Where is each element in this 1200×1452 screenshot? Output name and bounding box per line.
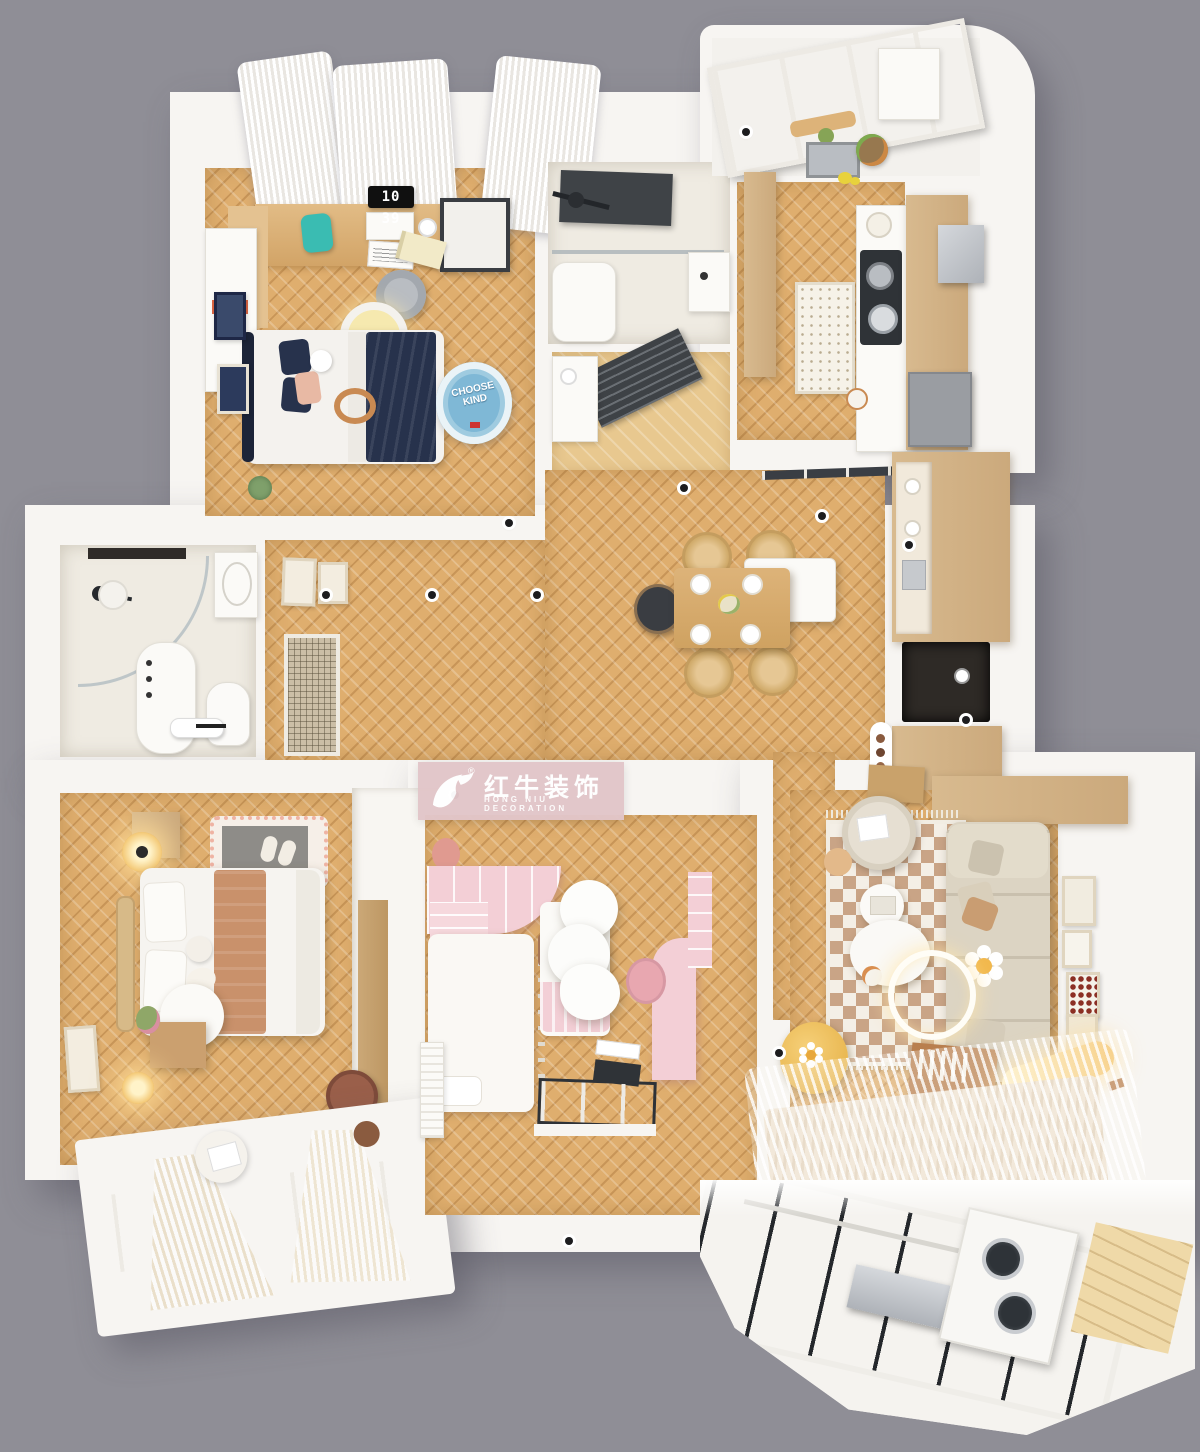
bed1-navy-duvet <box>366 332 436 462</box>
kitchen-snack-plate <box>846 388 868 410</box>
shelf-dish-1 <box>904 478 921 495</box>
sink-basin <box>222 562 252 606</box>
kids-window-sill <box>534 1124 656 1136</box>
spotlight <box>818 512 826 520</box>
bedroom1-art-1 <box>214 292 246 340</box>
flip-clock-time: 10 39 <box>382 189 401 227</box>
rug-red-tag <box>470 422 480 428</box>
pouf-daisy-center <box>806 1050 816 1060</box>
pen-cup <box>418 218 437 237</box>
table-flowers <box>718 594 740 614</box>
living-art-2 <box>1062 930 1092 968</box>
laundry-balcony <box>700 1180 1195 1435</box>
plate-4 <box>740 624 761 645</box>
kettle <box>866 212 892 238</box>
tub-control-1 <box>146 660 152 666</box>
master-pillow-1 <box>142 881 187 943</box>
kids-desk-chair <box>626 958 666 1004</box>
coffee-niche <box>902 642 990 722</box>
spotlight <box>565 1237 573 1245</box>
bed1-pretzel <box>334 388 376 424</box>
fridge <box>908 372 972 447</box>
bed1-pillow-a <box>278 338 312 375</box>
kids-heater <box>420 1042 444 1138</box>
daisy-cushion-center <box>976 958 992 974</box>
living-art-3 <box>1066 972 1100 1018</box>
coffee-table-book <box>870 896 896 915</box>
master-art <box>64 1025 101 1093</box>
lamp-center-dot <box>136 846 148 858</box>
spotlight <box>742 128 750 136</box>
spotlight <box>533 591 541 599</box>
shelf-dish-2 <box>904 520 921 537</box>
floorplan-render: 10 39 CHOOSE KIND <box>0 0 1200 1452</box>
spotlight <box>775 1049 783 1057</box>
bed1-pillow-peach <box>294 370 322 405</box>
laundry-curtain-wisp <box>700 1180 1195 1216</box>
choose-kind-rug: CHOOSE KIND <box>436 362 512 444</box>
kids-window <box>537 1078 657 1128</box>
pot-1 <box>866 262 894 290</box>
pot-2 <box>868 304 898 334</box>
plate-1 <box>690 574 711 595</box>
spotlight <box>905 541 913 549</box>
shower-room-sink <box>688 252 730 312</box>
cloud-table-flower <box>560 964 620 1020</box>
master-floor-lamp <box>122 1072 154 1104</box>
ring-floor-lamp <box>888 950 976 1040</box>
watermark-subtitle: HONG NIU DECORATION <box>484 795 624 813</box>
shower-head <box>568 192 584 208</box>
spotlight <box>505 519 513 527</box>
rug-text: CHOOSE KIND <box>444 378 503 411</box>
spotlight <box>428 591 436 599</box>
master-plush-ball <box>186 936 212 962</box>
bedroom1-art-2 <box>217 364 249 414</box>
shoes <box>876 734 885 743</box>
kitchen-runner-rug <box>795 282 855 394</box>
tv-cabinet <box>932 776 1128 824</box>
towel-bar <box>196 724 226 728</box>
corridor-art-1 <box>281 557 317 606</box>
master-foot-cabinet <box>150 1022 206 1068</box>
lemons <box>838 172 852 184</box>
balcony-appliance <box>878 48 940 120</box>
dining-chair-4 <box>748 646 798 696</box>
spotlight <box>680 484 688 492</box>
bed1-plush <box>310 350 332 372</box>
bath-tub-top <box>552 262 616 342</box>
croissant-plate <box>862 966 882 986</box>
living-art-1 <box>1062 876 1096 926</box>
master-flowers <box>136 1006 160 1034</box>
kitchen-sink <box>806 142 860 178</box>
armchair-book <box>856 814 889 842</box>
kids-wall-shelf <box>688 872 712 968</box>
bedroom1-bag <box>300 213 334 254</box>
paper-roll <box>560 368 577 385</box>
niche-cup <box>954 668 970 684</box>
registered-mark: ® <box>468 766 475 776</box>
master-bay-window <box>74 1097 455 1337</box>
wavy-mirror <box>116 896 135 1032</box>
corridor-screen-cabinet <box>284 634 340 756</box>
spotlight <box>322 591 330 599</box>
sink-drain-dot <box>700 272 708 280</box>
master-bed-fold <box>296 870 320 1034</box>
entry-cabinet <box>552 356 598 442</box>
spotlight <box>962 716 970 724</box>
bedroom1-plant <box>248 476 272 500</box>
range-hood <box>938 225 984 283</box>
living-pouf-small <box>824 848 852 876</box>
towel-roll <box>170 718 224 738</box>
fruit-bowl <box>856 134 888 166</box>
sofa-pillow-1 <box>967 839 1005 877</box>
flip-clock: 10 39 <box>368 186 414 208</box>
shelf-appliance <box>902 560 926 590</box>
corner-shelf <box>98 580 128 610</box>
dining-chair-3 <box>684 648 734 698</box>
watermark-banner: ® 红牛装饰 HONG NIU DECORATION <box>418 762 624 820</box>
display-cabinet <box>440 198 510 272</box>
plate-3 <box>690 624 711 645</box>
plate-2 <box>742 574 763 595</box>
kitchen-left-cabinet <box>744 172 776 377</box>
